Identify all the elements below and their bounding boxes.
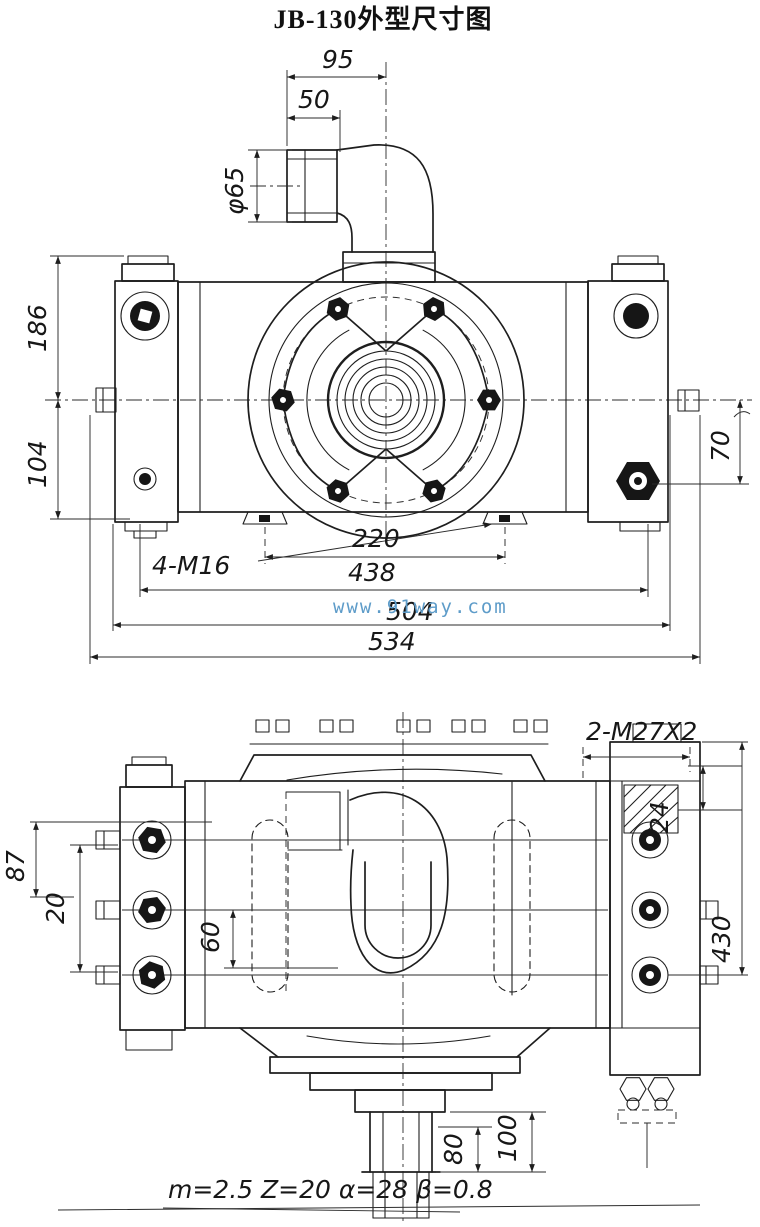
- drawing-title: JB-130外型尺寸图: [273, 5, 492, 34]
- watermark-text: www.91way.com: [333, 596, 508, 618]
- dim-104-label: 104: [23, 440, 52, 488]
- right-manifold: [610, 724, 718, 1168]
- dim-430-label: 430: [707, 915, 736, 963]
- drawing-sheet: JB-130外型尺寸图: [0, 0, 760, 1227]
- left-flange-plan: [96, 757, 185, 1050]
- left-flange: [96, 256, 178, 538]
- front-view-dimensions: 95 50 φ65 186 104 70 4-M16: [23, 45, 750, 664]
- pump-body: [178, 282, 588, 524]
- left-bolts: [133, 821, 171, 994]
- label-2-m27x2: 2-M27X2: [586, 717, 697, 746]
- dim-87-label: 87: [1, 850, 30, 882]
- dim-95-label: 95: [322, 45, 354, 74]
- dim-60-label: 60: [196, 921, 225, 953]
- label-4-m16: 4-M16: [152, 551, 230, 580]
- left-slot: [252, 820, 288, 992]
- right-flange: [588, 256, 699, 531]
- dim-100-label: 100: [493, 1114, 522, 1162]
- dim-186-label: 186: [23, 304, 52, 352]
- dim-70-label: 70: [706, 430, 735, 462]
- right-bolts: [632, 822, 668, 993]
- dim-phi65-label: φ65: [220, 167, 249, 215]
- dim-20-label: 20: [41, 892, 70, 924]
- dim-438-label: 438: [348, 558, 396, 587]
- top-cover: [240, 720, 548, 781]
- dim-24-label: 24: [645, 801, 674, 833]
- dim-534-label: 534: [368, 627, 416, 656]
- dim-50-label: 50: [298, 85, 330, 114]
- suction-elbow: [250, 145, 435, 282]
- bottom-bolt-cluster: [618, 1078, 676, 1168]
- dim-220-label: 220: [352, 524, 400, 553]
- dim-80-label: 80: [439, 1133, 468, 1165]
- left-stubs: [96, 831, 120, 984]
- plan-view: 2-M27X2 24 430 87 20: [1, 712, 748, 1222]
- gear-parameters-note: m=2.5 Z=20 α=28 β=0.8: [168, 1175, 493, 1204]
- jb130-dimension-drawing: JB-130外型尺寸图: [0, 0, 760, 1227]
- front-view: 95 50 φ65 186 104 70 4-M16: [23, 45, 752, 664]
